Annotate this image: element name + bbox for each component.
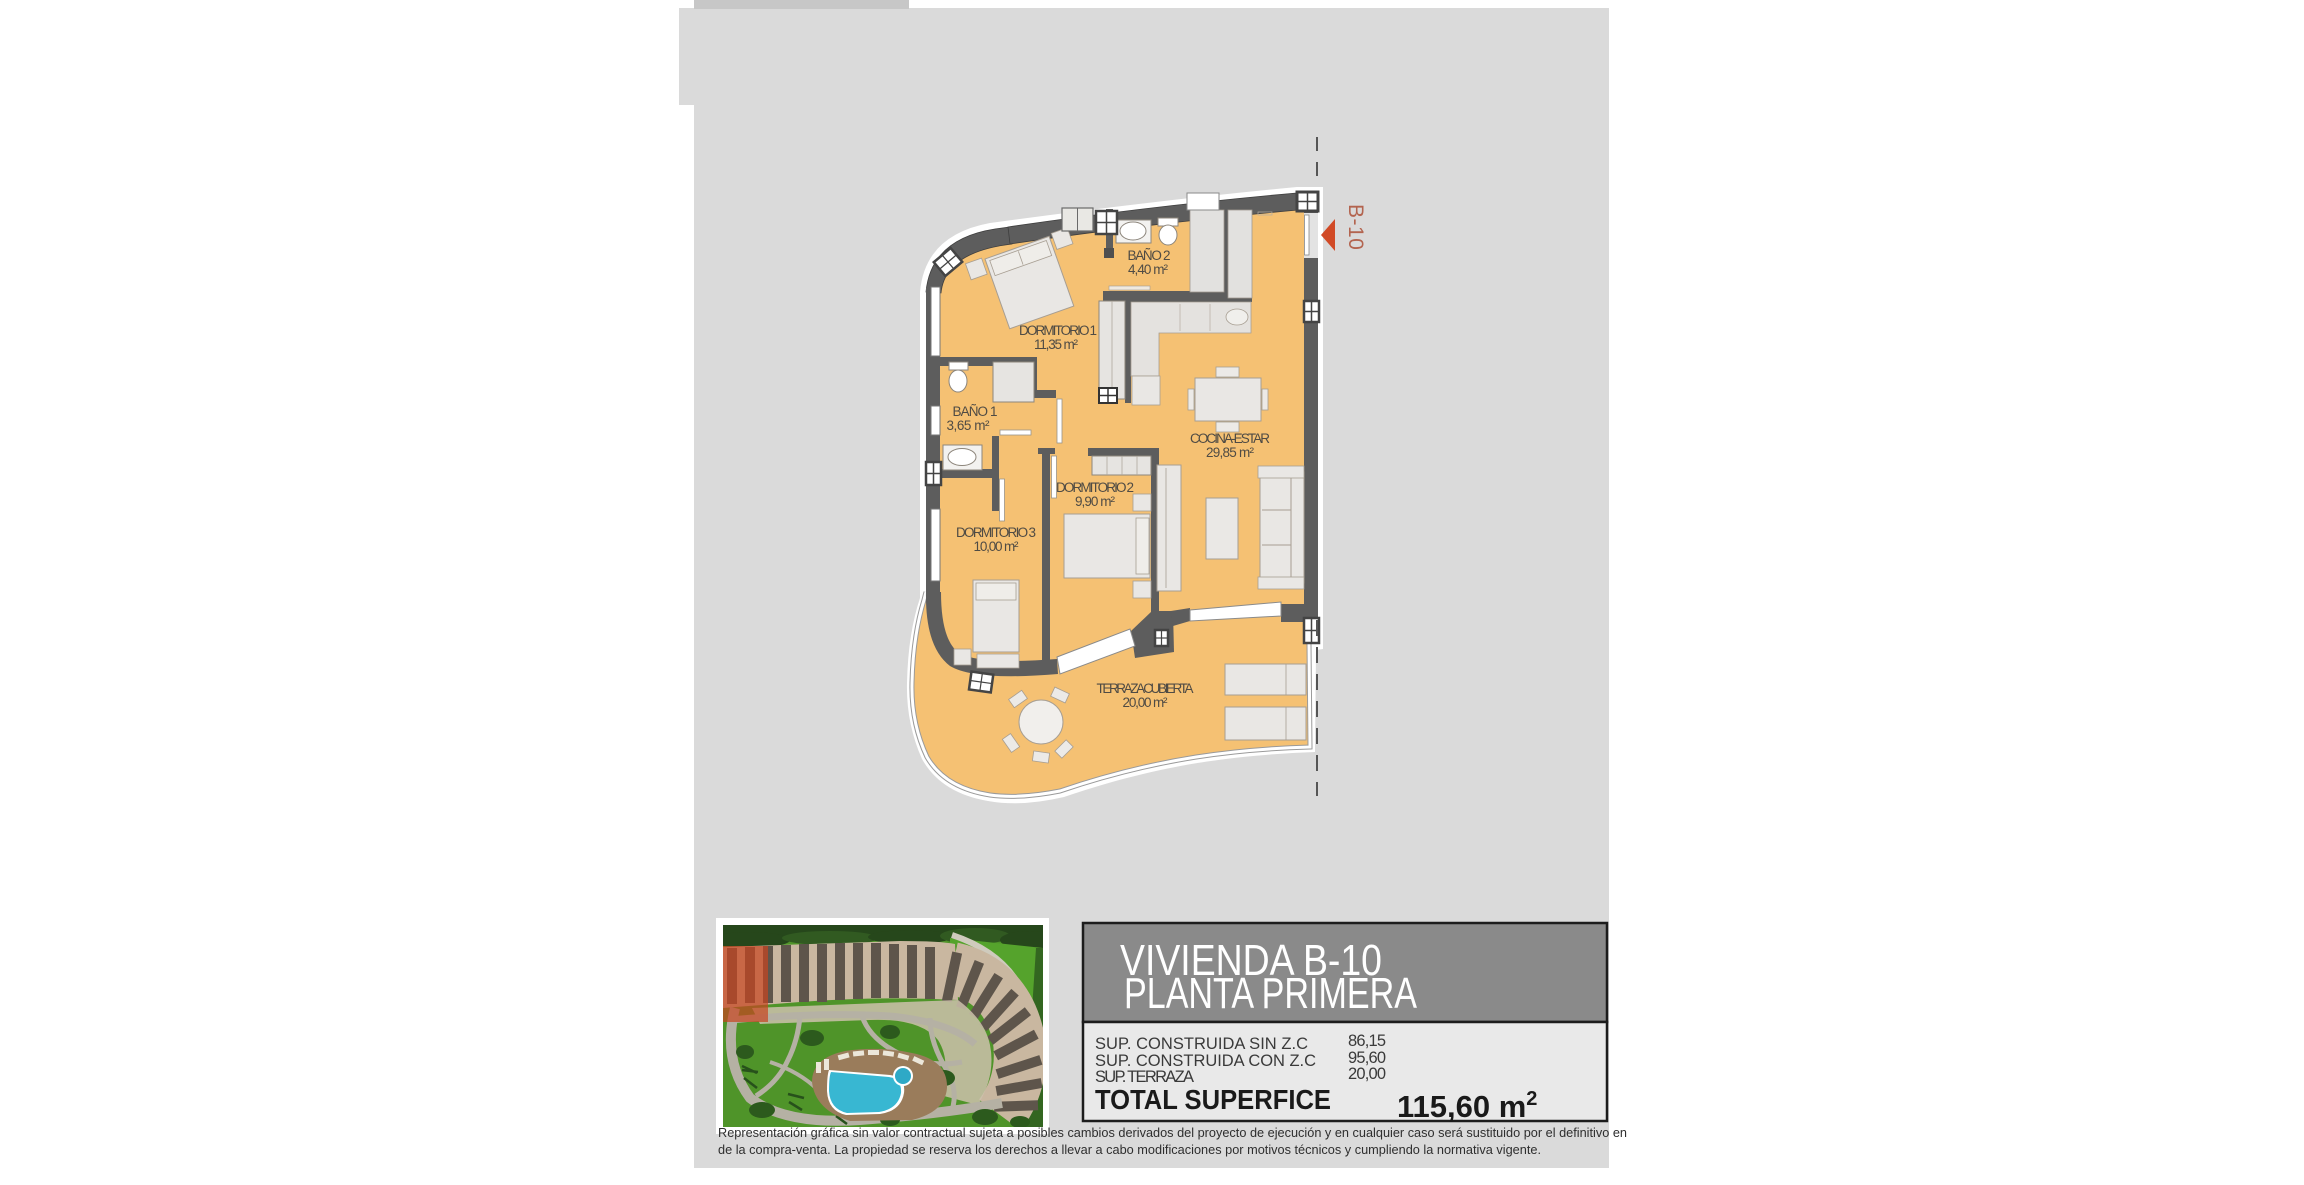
svg-text:20,00: 20,00 xyxy=(1348,1065,1386,1083)
svg-text:TERRAZA CUBIERTA: TERRAZA CUBIERTA xyxy=(1097,681,1194,696)
svg-text:115,60 m2: 115,60 m2 xyxy=(1397,1088,1537,1124)
svg-text:9,90 m²: 9,90 m² xyxy=(1075,494,1116,509)
svg-text:PLANTA PRIMERA: PLANTA PRIMERA xyxy=(1124,969,1418,1018)
svg-text:29,85 m²: 29,85 m² xyxy=(1206,445,1255,460)
svg-text:B-10: B-10 xyxy=(1344,204,1367,250)
svg-text:DORMITORIO 1: DORMITORIO 1 xyxy=(1019,323,1097,338)
svg-text:BAÑO 2: BAÑO 2 xyxy=(1128,248,1171,263)
svg-text:de la compra-venta. La propied: de la compra-venta. La propiedad se rese… xyxy=(718,1142,1541,1157)
svg-text:Representación gráfica sin val: Representación gráfica sin valor contrac… xyxy=(718,1125,1627,1140)
svg-text:3,65 m²: 3,65 m² xyxy=(947,418,991,433)
svg-text:DORMITORIO 2: DORMITORIO 2 xyxy=(1056,480,1134,495)
svg-text:11,35 m²: 11,35 m² xyxy=(1034,337,1079,352)
svg-text:TOTAL SUPERFICE: TOTAL SUPERFICE xyxy=(1095,1084,1331,1115)
svg-text:4,40 m²: 4,40 m² xyxy=(1128,262,1169,277)
svg-text:10,00 m²: 10,00 m² xyxy=(974,539,1020,554)
svg-text:20,00 m²: 20,00 m² xyxy=(1123,695,1169,710)
svg-text:COCINA-ESTAR: COCINA-ESTAR xyxy=(1190,431,1270,446)
svg-text:SUP. CONSTRUIDA SIN Z.C: SUP. CONSTRUIDA SIN Z.C xyxy=(1095,1035,1308,1053)
svg-text:DORMITORIO 3: DORMITORIO 3 xyxy=(956,525,1036,540)
svg-text:BAÑO 1: BAÑO 1 xyxy=(953,404,998,419)
svg-text:86,15: 86,15 xyxy=(1348,1032,1386,1050)
